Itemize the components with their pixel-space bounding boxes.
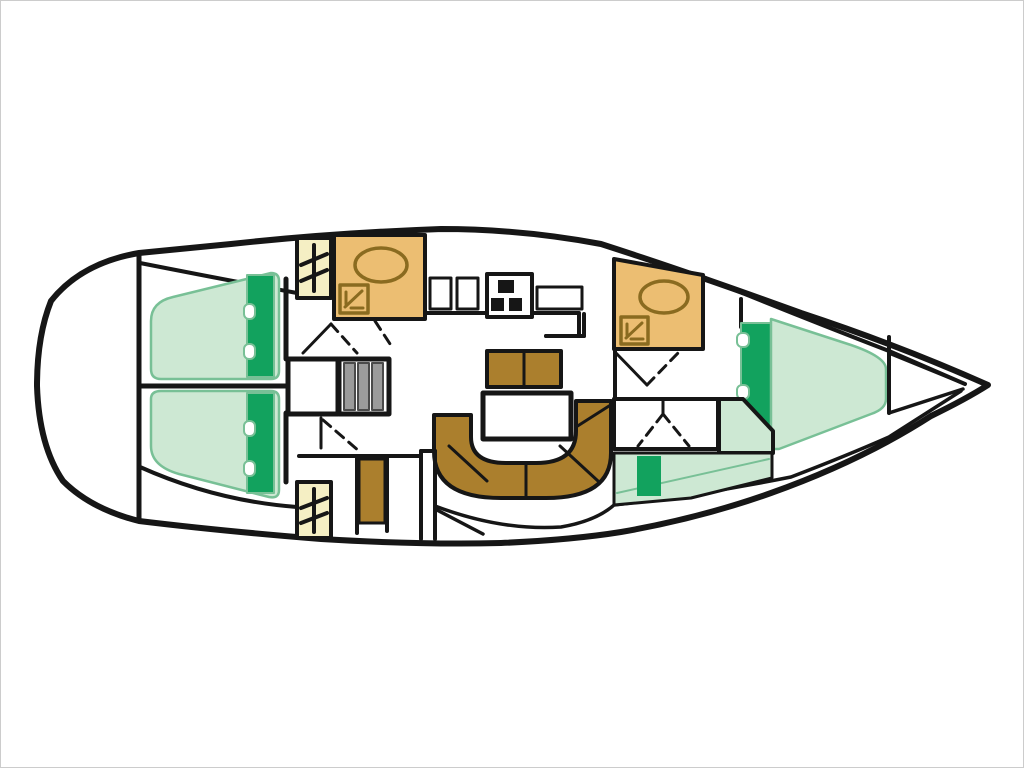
berth-headboard-starboard: [247, 393, 274, 493]
headboard-notch: [737, 333, 749, 347]
stove-burner: [498, 280, 514, 293]
settee-cushion: [637, 456, 661, 496]
headboard-notch: [737, 385, 749, 399]
step-tread: [344, 363, 355, 410]
step-tread: [358, 363, 369, 410]
yacht-floor-plan: [0, 0, 1024, 768]
nav-seat: [359, 459, 385, 523]
mast-compartment: [288, 359, 338, 414]
headboard-notch: [244, 344, 255, 359]
headboard-notch: [244, 421, 255, 436]
midship-head: [334, 235, 425, 319]
step-tread: [372, 363, 383, 410]
galley-worktop: [537, 287, 582, 309]
companionway: [288, 359, 389, 414]
floor-plan-drawing: [1, 1, 1024, 768]
berth-headboard-port: [247, 275, 274, 377]
forward-head: [614, 259, 703, 349]
headboard-notch: [244, 304, 255, 319]
stove-burner: [491, 298, 504, 311]
corridor-locker: [614, 399, 718, 449]
galley-sink: [430, 278, 451, 309]
stove-burner: [509, 298, 522, 311]
headboard-notch: [244, 461, 255, 476]
galley-sink: [457, 278, 478, 309]
saloon-table: [483, 393, 571, 439]
aft-cabins: [139, 273, 286, 497]
